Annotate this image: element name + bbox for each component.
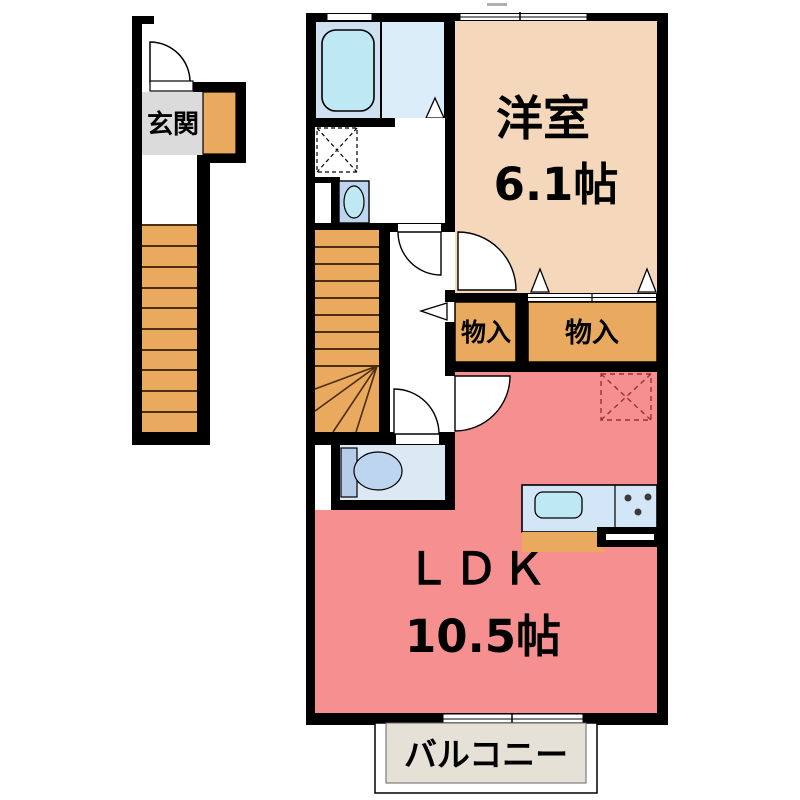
toilet-bowl bbox=[354, 452, 402, 490]
entrance-stairwell: 玄関 bbox=[132, 16, 246, 445]
washroom-door-opening bbox=[398, 224, 441, 232]
kitchen-partition-slot bbox=[606, 534, 654, 540]
stairwell-upper-right-wall-v bbox=[236, 82, 246, 163]
stairwell-left-wall bbox=[132, 16, 142, 445]
floor-plan: 玄関 bbox=[0, 0, 800, 800]
kitchen-sink bbox=[535, 492, 582, 518]
bathroom-area bbox=[306, 21, 455, 232]
western-room-size: 6.1帖 bbox=[494, 158, 619, 211]
western-room-window bbox=[460, 12, 587, 22]
closet-right-label: 物入 bbox=[565, 318, 619, 349]
toilet-bottom-wall bbox=[331, 500, 455, 510]
western-room-label: 洋室 bbox=[496, 92, 590, 147]
bath-window bbox=[327, 14, 372, 21]
stairwell-top-wall-nub bbox=[132, 16, 154, 24]
artifact-mark bbox=[487, 3, 507, 6]
hall-east-wall-column bbox=[445, 21, 455, 445]
balcony-label: バルコニー bbox=[404, 735, 568, 774]
bath-bottom-wall bbox=[315, 118, 395, 127]
burner-dot-3 bbox=[635, 509, 642, 516]
closet-left-label: 物入 bbox=[461, 318, 511, 347]
western-door-opening bbox=[445, 232, 455, 290]
stairwell-right-wall bbox=[197, 163, 210, 432]
pipe-space bbox=[315, 437, 331, 510]
genkan-label: 玄関 bbox=[147, 109, 199, 140]
western-room: 洋室 6.1帖 bbox=[445, 21, 668, 302]
laundry-pan-box bbox=[317, 128, 357, 172]
kitchen-cabinet bbox=[522, 532, 605, 552]
burner-dot-1 bbox=[625, 495, 632, 502]
shoe-cabinet bbox=[203, 92, 236, 154]
below-closet-wall bbox=[445, 362, 668, 372]
entrance-threshold bbox=[150, 81, 193, 91]
ldk-size: 10.5帖 bbox=[405, 610, 561, 663]
closets: 物入 物入 bbox=[421, 302, 668, 372]
unit-left-wall bbox=[306, 13, 315, 725]
ldk-door-opening bbox=[445, 376, 455, 432]
toilet-right-wall bbox=[445, 437, 455, 510]
vanity-basin bbox=[344, 186, 364, 218]
balcony: バルコニー bbox=[375, 713, 597, 793]
floor-plan-svg: 玄関 bbox=[0, 0, 800, 800]
vanity-side-wall bbox=[331, 177, 339, 223]
kitchen bbox=[522, 485, 657, 552]
closet-divider-wall bbox=[516, 302, 528, 362]
bath-door-opening bbox=[395, 118, 445, 127]
entrance-door-swing bbox=[150, 42, 190, 82]
toilet-left-wall bbox=[331, 437, 340, 510]
burner-dot-2 bbox=[645, 494, 652, 501]
bathtub bbox=[322, 30, 374, 111]
stairs-hall-divider-wall bbox=[379, 230, 390, 432]
stairwell-bottom-wall bbox=[132, 432, 210, 445]
